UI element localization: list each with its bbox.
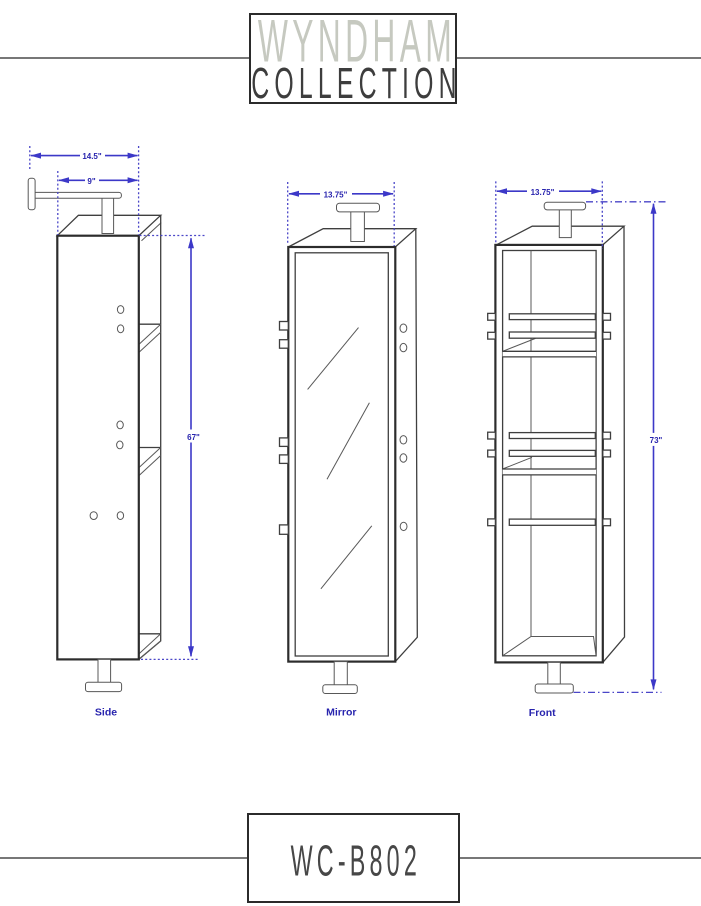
svg-text:Front: Front	[529, 707, 556, 719]
svg-text:9": 9"	[87, 177, 95, 186]
svg-text:13.75": 13.75"	[324, 190, 348, 199]
svg-text:14.5": 14.5"	[82, 152, 102, 161]
svg-text:WC-B802: WC-B802	[291, 837, 421, 886]
svg-text:67": 67"	[187, 433, 200, 442]
svg-text:Side: Side	[95, 707, 117, 719]
svg-text:13.75": 13.75"	[531, 188, 555, 197]
svg-text:73": 73"	[650, 436, 663, 445]
svg-text:Mirror: Mirror	[326, 707, 356, 719]
svg-text:COLLECTION: COLLECTION	[251, 59, 461, 108]
